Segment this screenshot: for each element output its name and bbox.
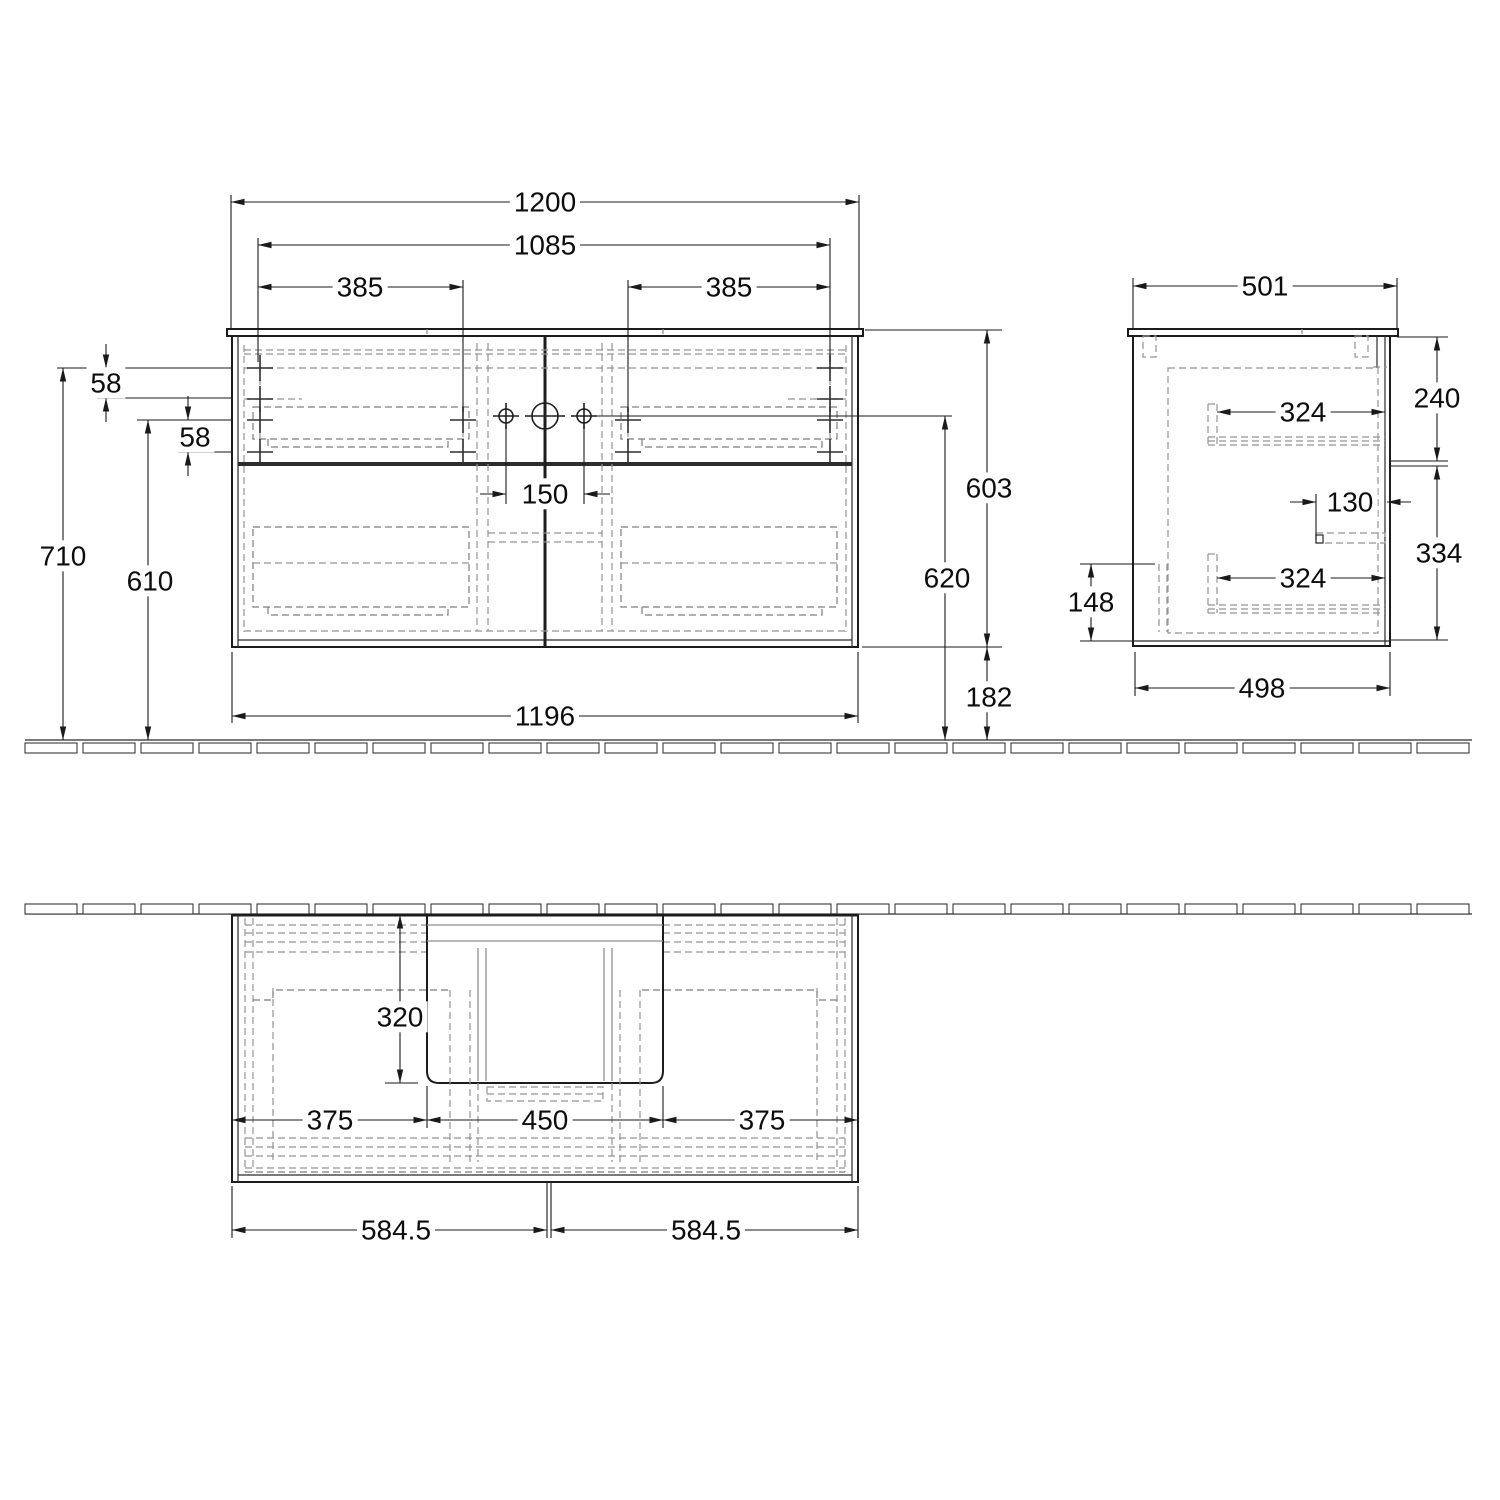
dim-side-siphon-height: 148 xyxy=(1064,586,1119,617)
dim-plan-basin-width: 450 xyxy=(518,1104,573,1135)
dim-front-body-width: 1196 xyxy=(511,700,579,731)
dim-plan-right-offset: 375 xyxy=(735,1104,790,1135)
dim-front-second-row-offset: 58 xyxy=(175,421,214,452)
dim-plan-center-right: 584.5 xyxy=(667,1214,745,1245)
drawing-geometry xyxy=(0,0,1500,1500)
dim-front-hole-span: 1085 xyxy=(510,229,580,260)
dim-side-body-depth: 498 xyxy=(1235,672,1290,703)
front-view xyxy=(57,195,1002,740)
dim-front-hole-offset-left: 385 xyxy=(333,271,388,302)
faucet-holes xyxy=(493,396,597,436)
dim-front-top-row-offset: 58 xyxy=(86,367,125,398)
technical-drawing-canvas: 1200 1085 385 385 58 58 710 610 150 1196… xyxy=(0,0,1500,1500)
dim-front-hole-center-height: 620 xyxy=(920,562,975,593)
dim-plan-basin-depth: 320 xyxy=(373,1001,428,1032)
floor-line xyxy=(25,740,1472,753)
dim-side-handle-recess-depth: 130 xyxy=(1323,486,1378,517)
dim-side-upper-runner-depth: 324 xyxy=(1276,396,1331,427)
dim-plan-left-offset: 375 xyxy=(303,1104,358,1135)
dim-plan-center-left: 584.5 xyxy=(357,1214,435,1245)
plan-view xyxy=(232,915,858,1238)
dim-side-upper-front-height: 240 xyxy=(1410,382,1465,413)
dim-front-hole-offset-right: 385 xyxy=(702,271,757,302)
dim-front-overall-width: 1200 xyxy=(510,186,580,217)
dim-side-lower-front-height: 334 xyxy=(1412,537,1467,568)
dim-side-lower-runner-depth: 324 xyxy=(1276,562,1331,593)
dim-front-clearance-below: 182 xyxy=(962,681,1017,712)
wall-line xyxy=(25,904,1472,914)
side-view xyxy=(1080,278,1448,696)
dim-front-overall-height: 710 xyxy=(36,540,91,571)
dim-front-lower-row-height: 610 xyxy=(123,565,178,596)
dim-front-faucet-spacing: 150 xyxy=(518,478,573,509)
front-dimensions xyxy=(57,195,1002,740)
dim-side-overall-depth: 501 xyxy=(1238,270,1293,301)
sink-outline xyxy=(427,915,663,1083)
plan-dimensions xyxy=(232,915,858,1238)
dim-front-body-height: 603 xyxy=(962,472,1017,503)
